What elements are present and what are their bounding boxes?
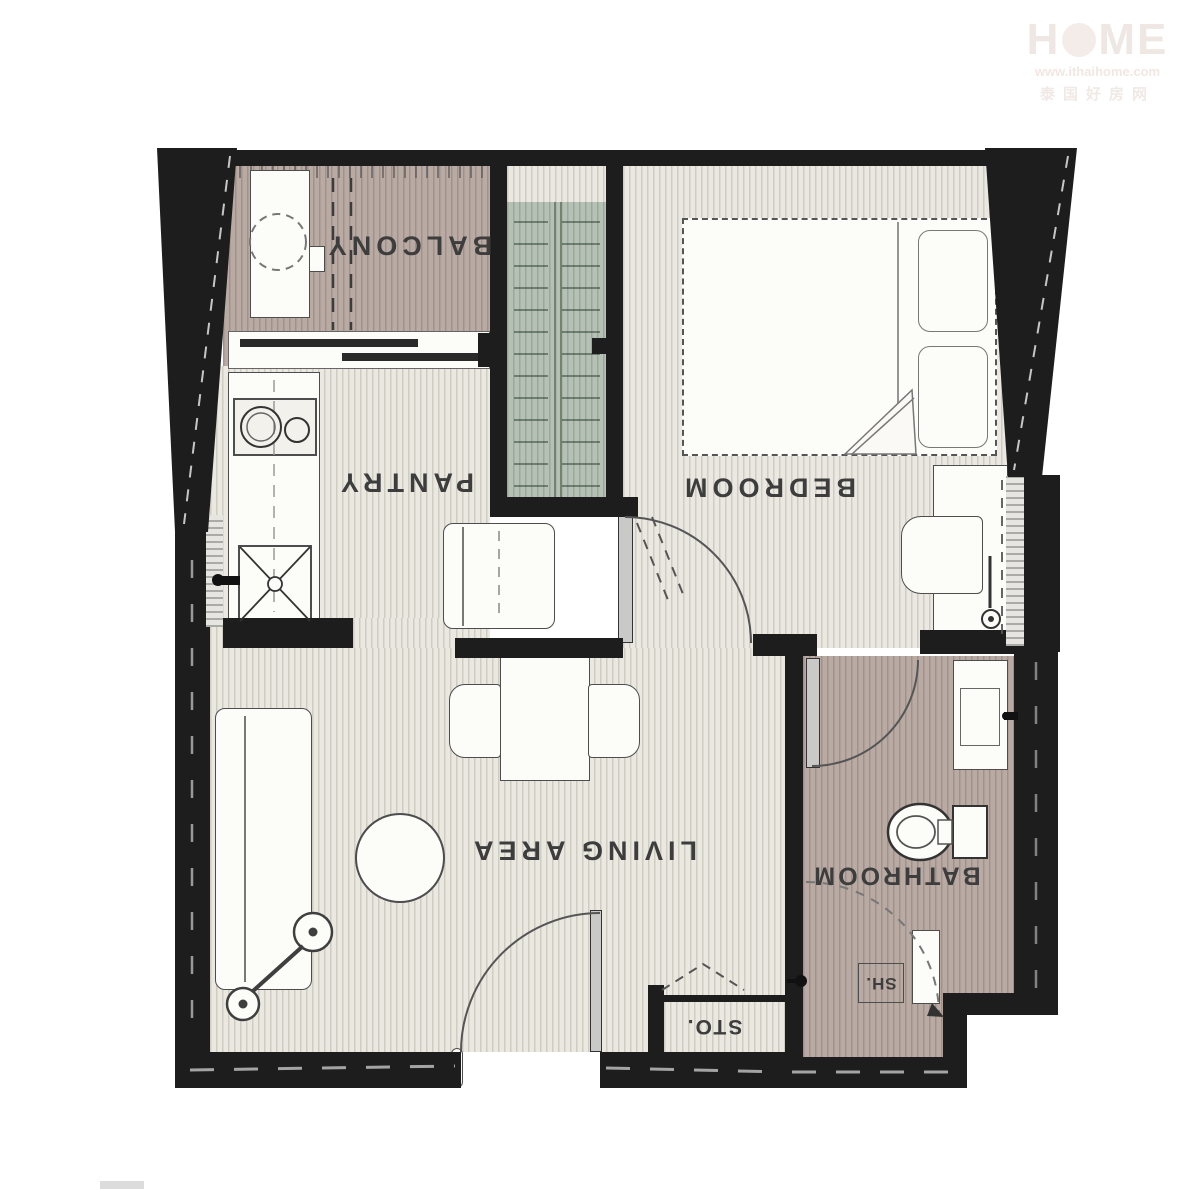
desk-lamp-dot <box>988 616 994 622</box>
watermark-brand-left: H <box>1027 18 1061 62</box>
blanket-fold <box>845 390 916 454</box>
storage-shelf-dashes <box>662 964 744 990</box>
pantry-label: PANTRY <box>336 467 474 498</box>
shower-curtain-arc <box>806 882 939 1015</box>
bathroom-label: BATHROOM <box>811 861 980 890</box>
bathroom-door-arc <box>812 660 918 766</box>
shower-head-icon <box>795 975 807 987</box>
watermark-chinese: 泰国好房网 <box>1005 83 1190 104</box>
watermark-url: www.ithaihome.com <box>1005 64 1190 79</box>
watermark-brand: H ME <box>1005 18 1190 62</box>
lamp-base-dot <box>239 1000 248 1009</box>
bottom-wall-hatch-left <box>190 1066 455 1070</box>
storage-label: STO. <box>686 1014 743 1038</box>
lamp-arm <box>253 946 303 991</box>
entrance-door-arc <box>461 913 600 1052</box>
watermark: H ME www.ithaihome.com 泰国好房网 <box>1005 18 1190 104</box>
toilet-seat-hinge <box>938 820 952 844</box>
lamp-head-dot <box>309 928 318 937</box>
toilet-tank <box>953 806 987 858</box>
shower-arc-arrow <box>927 1003 944 1017</box>
bedroom-label: BEDROOM <box>680 472 856 503</box>
round-table <box>356 814 444 902</box>
bedroom-door-arc <box>625 517 751 643</box>
bottom-wall-hatch-mid <box>606 1068 782 1072</box>
bedroom-door-dash-1 <box>637 523 668 600</box>
washer-drum-icon <box>250 214 306 270</box>
plan-symbol-overlay <box>0 0 1200 1189</box>
watermark-logo-icon <box>1062 23 1096 57</box>
balcony-label: BALCONY <box>324 230 493 261</box>
watermark-brand-right: ME <box>1098 18 1168 62</box>
vanity-faucet-dot <box>1002 712 1010 720</box>
floor-plan: BALCONY PANTRY BEDROOM LIVING AREA BATHR… <box>0 0 1200 1189</box>
top-left-wedge-wall <box>157 148 237 532</box>
sink-faucet-dot <box>212 574 224 586</box>
sink-drain-icon <box>268 577 282 591</box>
corner-artifact <box>100 1181 144 1189</box>
burner-large-inner-icon <box>247 413 275 441</box>
shower-label: SH. <box>865 973 896 993</box>
living-label: LIVING AREA <box>469 835 697 866</box>
top-right-wedge-wall <box>985 148 1077 477</box>
burner-small-icon <box>285 418 309 442</box>
